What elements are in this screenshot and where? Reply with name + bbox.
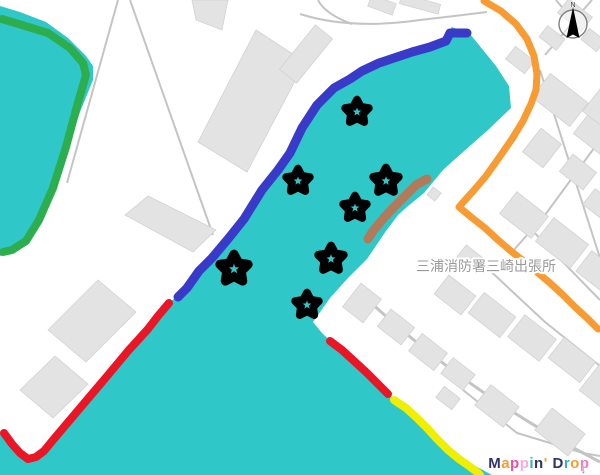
logo-letter: o — [570, 455, 580, 472]
building — [192, 0, 228, 30]
building — [508, 315, 557, 362]
poi-label-layer: 三浦消防署三崎出張所三浦消防署三崎出張所 — [416, 258, 556, 274]
building — [343, 283, 382, 323]
building — [559, 154, 596, 190]
logo-letter: n — [534, 455, 544, 472]
app-logo: Mappin' Drop↓ — [488, 455, 596, 472]
road-line — [300, 12, 487, 24]
building — [583, 189, 600, 222]
west-water — [0, 6, 93, 256]
road-line — [130, 0, 213, 235]
building — [436, 386, 460, 409]
building — [441, 358, 475, 391]
compass-north-label: N — [570, 2, 575, 9]
building — [548, 337, 596, 382]
building — [500, 192, 549, 239]
drop-pin-arrow-icon: ↓ — [581, 462, 588, 475]
logo-letter: p — [510, 455, 520, 472]
building — [532, 73, 588, 126]
map-viewport[interactable]: 三浦消防署三崎出張所三浦消防署三崎出張所 N Mappin' Drop↓ — [0, 0, 600, 475]
building — [427, 187, 441, 201]
building — [523, 128, 562, 168]
building — [368, 0, 397, 15]
logo-letter: M — [488, 455, 501, 472]
building — [48, 280, 136, 362]
building — [399, 0, 440, 14]
map-canvas[interactable]: 三浦消防署三崎出張所三浦消防署三崎出張所 N — [0, 0, 600, 475]
building — [434, 275, 476, 315]
poi-label: 三浦消防署三崎出張所 — [416, 258, 556, 274]
logo-letter: a — [501, 455, 510, 472]
building — [468, 292, 516, 337]
logo-letter: p — [520, 455, 530, 472]
logo-letter: D — [552, 455, 563, 472]
